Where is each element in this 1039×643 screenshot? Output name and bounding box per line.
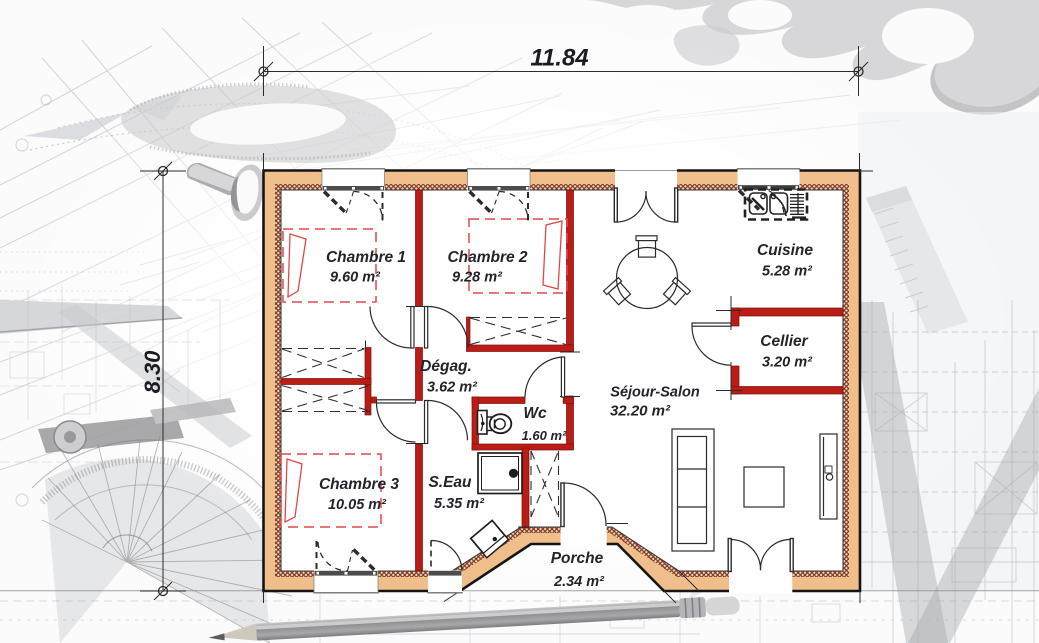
svg-text:9.28 m²: 9.28 m² [452, 270, 503, 286]
svg-text:Wc: Wc [523, 405, 547, 422]
svg-text:32.20 m²: 32.20 m² [610, 403, 671, 420]
svg-text:Chambre 1: Chambre 1 [326, 249, 406, 266]
svg-text:3.20 m²: 3.20 m² [762, 355, 813, 371]
svg-text:Chambre 2: Chambre 2 [447, 249, 527, 266]
svg-text:8.30: 8.30 [140, 350, 165, 394]
svg-text:11.84: 11.84 [530, 45, 588, 72]
svg-text:10.05 m²: 10.05 m² [328, 497, 387, 513]
svg-text:2.34 m²: 2.34 m² [553, 574, 605, 590]
svg-text:1.60 m²: 1.60 m² [522, 428, 567, 443]
svg-text:S.Eau: S.Eau [428, 474, 472, 491]
svg-text:Séjour-Salon: Séjour-Salon [610, 385, 700, 401]
svg-text:5.28 m²: 5.28 m² [762, 264, 813, 280]
svg-text:3.62 m²: 3.62 m² [427, 380, 478, 396]
svg-text:Dégag.: Dégag. [420, 358, 472, 375]
svg-text:Porche: Porche [551, 550, 604, 567]
svg-text:Chambre 3: Chambre 3 [319, 476, 399, 493]
svg-text:9.60 m²: 9.60 m² [330, 270, 381, 286]
svg-text:Cellier: Cellier [760, 333, 808, 350]
svg-text:5.35 m²: 5.35 m² [434, 496, 485, 512]
svg-text:Cuisine: Cuisine [757, 242, 813, 259]
